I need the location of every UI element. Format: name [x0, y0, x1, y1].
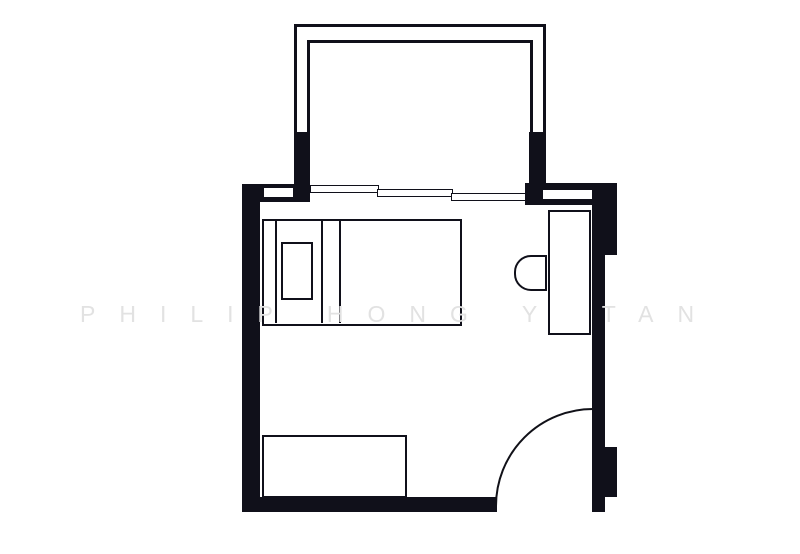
sliding-window-panel-1 [310, 185, 379, 193]
wall-left [242, 184, 260, 512]
wall-right-lower-pier [605, 447, 617, 497]
desk [548, 210, 591, 335]
wall-right [592, 183, 605, 512]
wall-opening-left [264, 188, 293, 197]
floor-plan-canvas: PHILIP HONG YUTAN [0, 0, 800, 554]
chair [514, 255, 547, 291]
dresser [262, 435, 407, 498]
sliding-window-panel-3 [451, 193, 526, 201]
wall-right-upper-pier [605, 183, 617, 255]
sliding-window-panel-2 [377, 189, 453, 197]
balcony-inner-rail [307, 40, 533, 200]
watermark-text: PHILIP HONG YUTAN [80, 301, 718, 328]
pillow [281, 242, 313, 300]
wall-opening-right [543, 190, 594, 199]
wall-bottom [242, 497, 497, 512]
